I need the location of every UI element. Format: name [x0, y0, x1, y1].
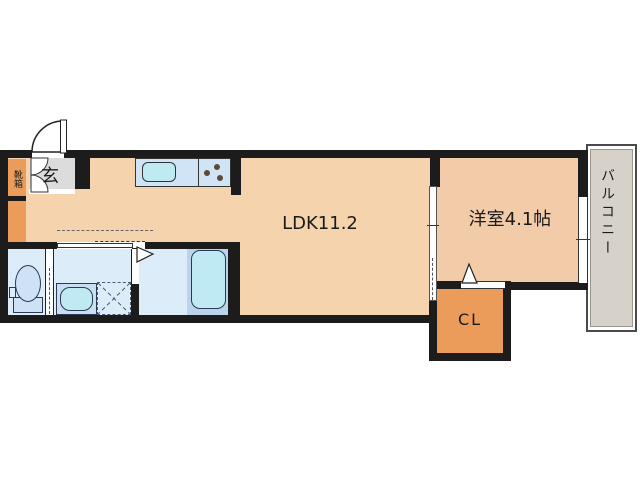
toilet-door-dash [49, 268, 50, 314]
kitchen-sink [142, 162, 176, 182]
bottom-wall [0, 315, 440, 323]
western-room-bottom-wall [505, 282, 588, 290]
bathtub [191, 250, 226, 309]
toilet-bowl [15, 265, 41, 302]
kitchen-wall-stub [231, 158, 241, 195]
bathroom-door [132, 248, 139, 285]
stove-burner-icon [214, 164, 220, 170]
entrance-label: 玄 [41, 162, 59, 188]
washing-machine-space [97, 282, 131, 315]
balcony-window-tick [576, 239, 590, 240]
left-wall [0, 150, 8, 323]
balcony-window [578, 197, 588, 283]
partition-wall-top [430, 150, 440, 187]
corner-post-top-right [578, 150, 588, 197]
toilet-paper-holder [9, 287, 16, 298]
entrance-door-leaf [61, 120, 67, 153]
stove-burner-icon [204, 170, 210, 176]
vanity-basin [60, 287, 93, 311]
balcony-label: バルコニー [597, 168, 617, 318]
entrance-step [29, 189, 75, 194]
closet-door [461, 281, 505, 289]
washroom-sliding-door-panel [57, 243, 133, 248]
ldk-label: LDK11.2 [250, 213, 390, 234]
closet-label: CL [437, 310, 503, 329]
upper-cabinet-dashed-line [57, 230, 153, 231]
western-room-sliding-door [429, 186, 437, 301]
kitchen-counter-divider [198, 158, 199, 187]
western-room-label: 洋室4.1帖 [445, 205, 575, 231]
entrance-doorway [32, 150, 64, 158]
entrance-wall-post [75, 157, 90, 189]
sliding-door-tick [427, 225, 439, 226]
top-wall [8, 150, 580, 158]
western-room-sliding-door-dash [432, 258, 433, 300]
floor-plan: LDK11.2 洋室4.1帖 CL 玄 靴箱 バルコニー [0, 0, 640, 480]
storage-lower [8, 201, 26, 242]
bathroom-right-wall [228, 242, 240, 323]
entrance-door-swing-arc [32, 121, 63, 152]
washroom-sliding-door-track [95, 241, 145, 242]
stove-burner-icon [217, 175, 223, 181]
shoe-box-label: 靴箱 [8, 162, 26, 196]
